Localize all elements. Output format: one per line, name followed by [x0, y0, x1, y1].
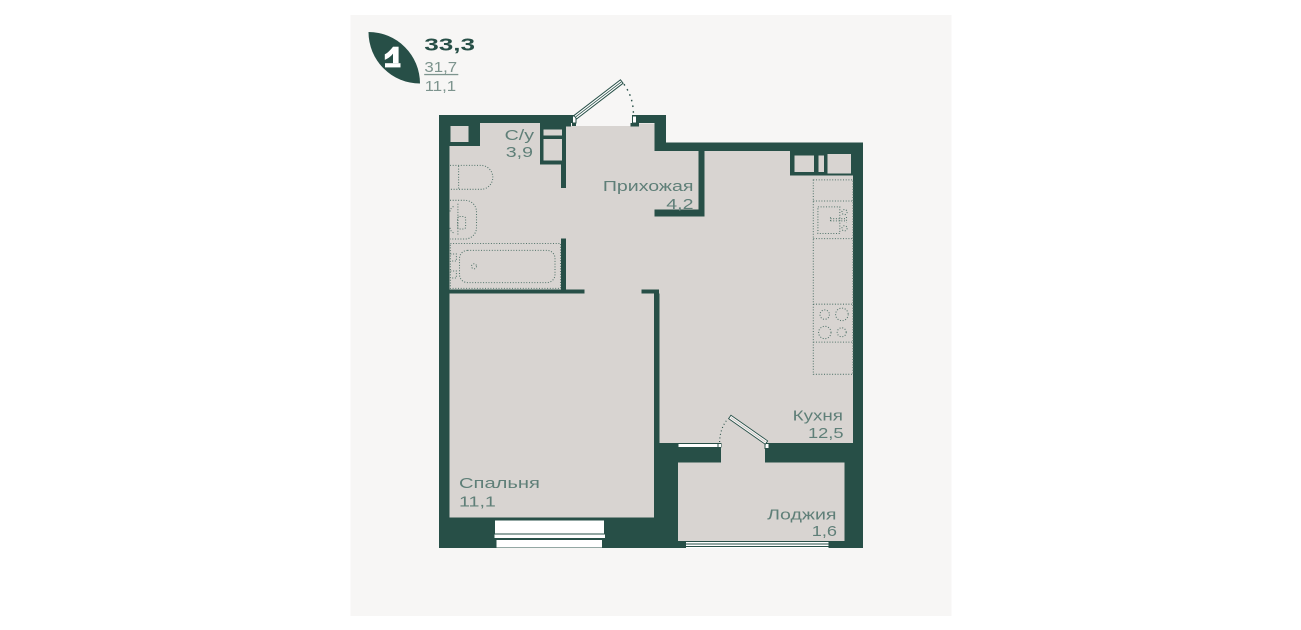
- svg-text:Кухня: Кухня: [793, 408, 843, 424]
- svg-text:33,3: 33,3: [424, 35, 475, 55]
- svg-text:3,9: 3,9: [506, 144, 533, 161]
- svg-text:1,6: 1,6: [812, 524, 837, 540]
- svg-text:4,2: 4,2: [666, 196, 693, 213]
- svg-text:Спальня: Спальня: [459, 475, 540, 492]
- svg-text:31,7: 31,7: [424, 60, 457, 76]
- svg-text:Прихожая: Прихожая: [603, 178, 694, 195]
- svg-text:11,1: 11,1: [425, 79, 457, 95]
- svg-text:Лоджия: Лоджия: [767, 506, 836, 523]
- svg-text:12,5: 12,5: [808, 426, 844, 442]
- svg-text:11,1: 11,1: [459, 493, 496, 510]
- svg-text:С/у: С/у: [505, 127, 535, 144]
